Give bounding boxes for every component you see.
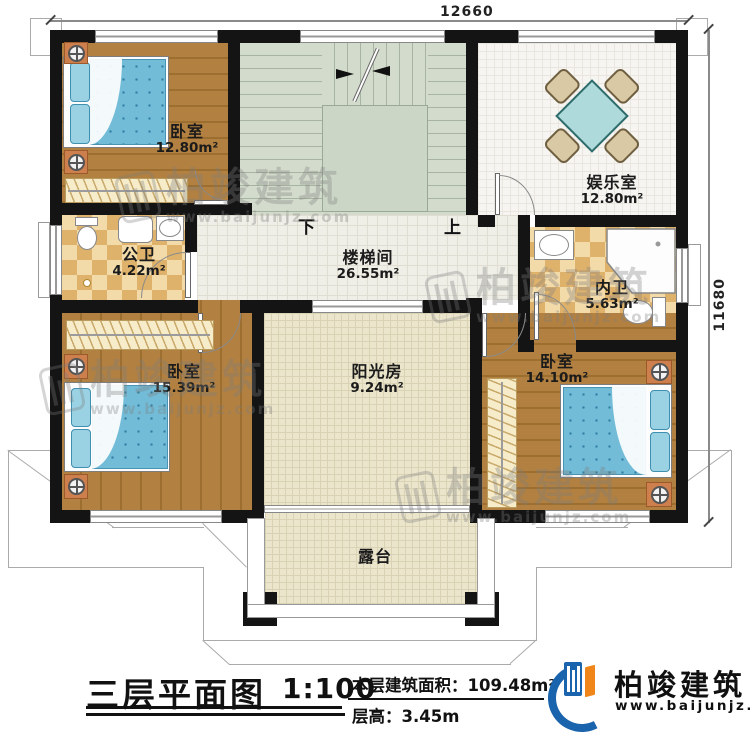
floor-plan-page: 卧室12.80m² 公卫4.22m² 楼梯间26.55m² 娱乐室12.80m²… bbox=[0, 0, 750, 734]
watermark: 柏竣建筑www.baijunjz.com bbox=[118, 168, 351, 226]
window-top-stair bbox=[300, 30, 445, 43]
stair-up-label: 上 bbox=[444, 213, 461, 238]
wardrobe-bottom-left bbox=[66, 320, 214, 350]
window-top-entertainment bbox=[518, 30, 655, 43]
label-bedroom-br: 卧室14.10m² bbox=[487, 353, 627, 385]
watermark: 柏竣建筑www.baijunjz.com bbox=[428, 268, 661, 326]
window-left-bathroom bbox=[50, 225, 62, 295]
dimension-top-value: 12660 bbox=[440, 4, 494, 20]
floor-area-text: 本层建筑面积：109.48m² bbox=[352, 672, 556, 696]
window-sunroom-top bbox=[312, 300, 423, 313]
brand-logo-icon bbox=[548, 658, 610, 720]
nightstand bbox=[646, 482, 672, 507]
nightstand bbox=[64, 150, 88, 174]
label-stairwell: 楼梯间26.55m² bbox=[298, 249, 438, 281]
label-sunroom: 阳光房9.24m² bbox=[307, 363, 447, 395]
floor-height-text: 层高：3.45m bbox=[352, 703, 459, 727]
label-entertainment: 娱乐室12.80m² bbox=[542, 174, 682, 206]
stair-arrow-left-icon bbox=[336, 69, 354, 79]
watermark-logo-icon bbox=[423, 269, 472, 324]
watermark-logo-icon bbox=[393, 469, 442, 524]
label-terrace: 露台 bbox=[305, 548, 445, 566]
watermark: 柏竣建筑www.baijunjz.com bbox=[398, 468, 631, 526]
dimension-right-value: 11680 bbox=[712, 278, 728, 332]
nightstand bbox=[64, 474, 88, 499]
watermark: 柏竣建筑www.baijunjz.com bbox=[42, 360, 275, 418]
nightstand bbox=[646, 360, 672, 384]
watermark-logo-icon bbox=[113, 169, 162, 224]
label-bathroom-public: 公卫4.22m² bbox=[69, 246, 209, 278]
window-bottom-left-bedroom bbox=[90, 510, 222, 523]
brand-url: www.baijunjz.com bbox=[615, 698, 750, 714]
label-bedroom-tl: 卧室12.80m² bbox=[117, 123, 257, 155]
stair-arrow-right-icon bbox=[372, 66, 390, 76]
watermark-logo-icon bbox=[37, 361, 86, 416]
nightstand bbox=[64, 42, 88, 64]
window-top-bedroom bbox=[95, 30, 218, 43]
